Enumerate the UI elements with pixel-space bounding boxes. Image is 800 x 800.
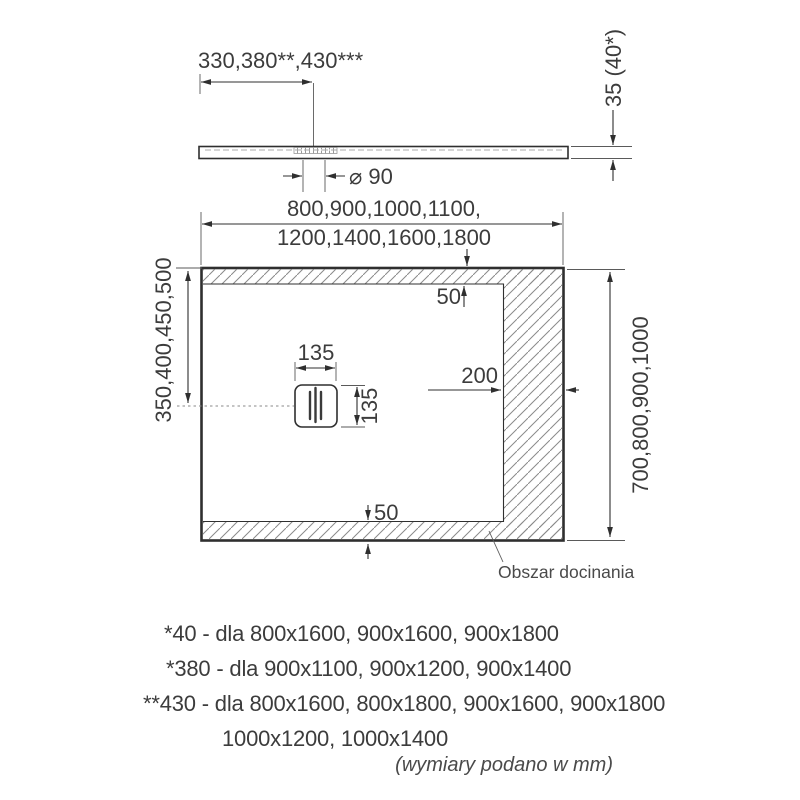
footnote-2: *380 - dla 900x1100, 900x1200, 900x1400 — [166, 656, 571, 682]
footnotes: *40 - dla 800x1600, 900x1600, 900x1800 *… — [0, 0, 800, 800]
shower-tray-technical-drawing: 330,380**,430*** ⌀ 90 35 (40*) 800,900,1… — [0, 0, 800, 800]
units-note: (wymiary podano w mm) — [395, 754, 613, 777]
footnote-1: *40 - dla 800x1600, 900x1600, 900x1800 — [164, 621, 559, 647]
footnote-3-continued: 1000x1200, 1000x1400 — [222, 726, 448, 752]
footnote-3: **430 - dla 800x1600, 800x1800, 900x1600… — [143, 691, 665, 717]
